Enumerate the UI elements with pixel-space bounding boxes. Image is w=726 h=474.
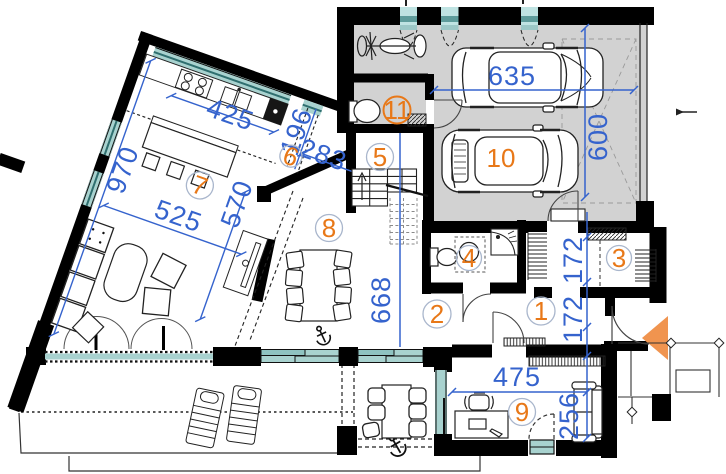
svg-text:10: 10 bbox=[487, 143, 516, 173]
svg-text:600: 600 bbox=[583, 113, 613, 161]
svg-text:5: 5 bbox=[373, 142, 387, 172]
svg-text:172: 172 bbox=[558, 236, 588, 284]
svg-text:475: 475 bbox=[493, 362, 541, 392]
svg-text:4: 4 bbox=[462, 243, 476, 273]
svg-text:2: 2 bbox=[430, 299, 444, 329]
svg-text:172: 172 bbox=[558, 295, 588, 343]
svg-text:8: 8 bbox=[322, 213, 336, 243]
svg-text:256: 256 bbox=[554, 392, 584, 440]
svg-text:9: 9 bbox=[515, 397, 529, 427]
svg-text:11: 11 bbox=[384, 95, 411, 125]
svg-text:668: 668 bbox=[366, 276, 396, 324]
svg-text:635: 635 bbox=[488, 61, 536, 91]
svg-text:3: 3 bbox=[612, 243, 626, 273]
svg-text:1: 1 bbox=[534, 296, 548, 326]
